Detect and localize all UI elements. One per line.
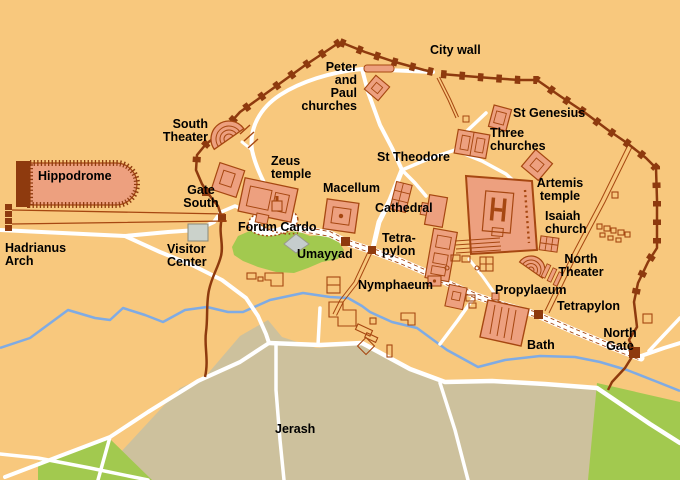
label-tetrapylon-south: Tetra- pylon: [382, 232, 416, 258]
label-nymphaeum: Nymphaeum: [358, 279, 433, 292]
isaiah-church-structure: [539, 236, 559, 252]
label-jerash: Jerash: [275, 423, 315, 436]
label-hippodrome: Hippodrome: [38, 170, 112, 183]
label-visitor-center: Visitor Center: [167, 243, 207, 269]
label-peter-paul-churches: Peter and Paul churches: [277, 61, 357, 113]
label-forum-cardo: Forum Cardo: [238, 221, 316, 234]
peter-paul-bar: [364, 65, 394, 72]
label-north-theater: North Theater: [548, 253, 614, 279]
bath-structure: [480, 300, 529, 346]
road-nymphaeum-south: [318, 308, 320, 345]
cardo-monument-marker: [368, 246, 376, 254]
macellum-structure: [323, 199, 359, 233]
building-west-of-cardo: [445, 284, 467, 309]
label-artemis-temple: Artemis temple: [524, 177, 596, 203]
label-isaiah-church: Isaiah church: [545, 210, 587, 236]
label-gate-south: Gate South: [170, 184, 232, 210]
label-three-churches: Three churches: [490, 127, 546, 153]
label-st-genesius: St Genesius: [513, 107, 585, 120]
label-macellum: Macellum: [323, 182, 380, 195]
tetrapylon-south-marker: [341, 237, 350, 246]
jerash-map: Hippodrome City wall South Theater Zeus …: [0, 0, 680, 480]
label-bath: Bath: [527, 339, 555, 352]
hippodrome-structure: [16, 161, 137, 207]
label-tetrapylon-north: Tetrapylon: [557, 300, 620, 313]
label-north-gate: North Gate: [588, 327, 652, 353]
visitor-center-structure: [188, 224, 208, 241]
label-cathedral: Cathedral: [375, 202, 433, 215]
label-umayyad: Umayyad: [297, 248, 353, 261]
label-st-theodore: St Theodore: [377, 151, 450, 164]
label-city-wall: City wall: [430, 44, 481, 57]
label-zeus-temple: Zeus temple: [271, 155, 311, 181]
three-churches-structure: [454, 129, 490, 158]
label-hadrianus-arch: Hadrianus Arch: [5, 242, 66, 268]
tetrapylon-north-marker: [534, 310, 543, 319]
label-south-theater: South Theater: [128, 118, 208, 144]
label-propylaeum: Propylaeum: [495, 284, 567, 297]
